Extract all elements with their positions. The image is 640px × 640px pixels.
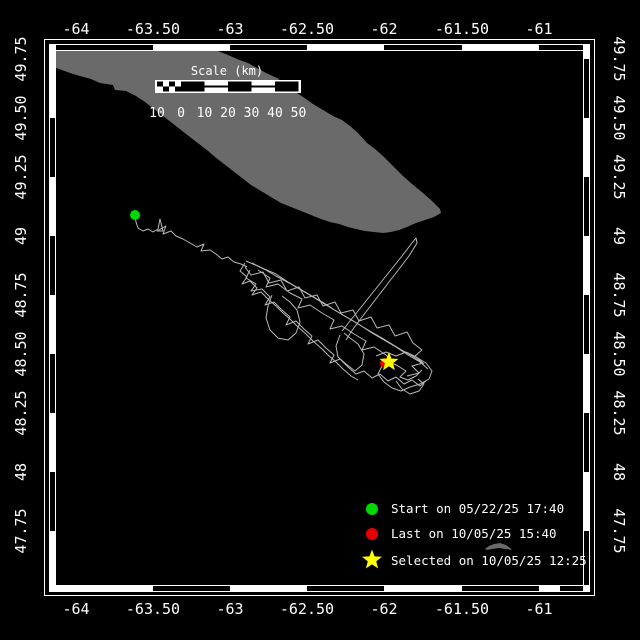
lon-tick-label: -63: [216, 600, 243, 618]
legend-last-label: Last on 10/05/25 15:40: [391, 526, 557, 541]
map-background: [0, 0, 640, 640]
lat-tick-label: 48.50: [12, 331, 30, 376]
latitude-labels-left: 49.75 49.50 49.25 49 48.75 48.50 48.25 4…: [12, 36, 30, 553]
lat-tick-label: 48.25: [12, 390, 30, 435]
scale-number: 10: [149, 106, 165, 121]
lon-tick-label: -62: [370, 20, 397, 38]
longitude-labels-bottom: -64 -63.50 -63 -62.50 -62 -61.50 -61: [62, 600, 552, 618]
lon-tick-label: -62.50: [280, 600, 334, 618]
lon-tick-label: -61: [525, 20, 552, 38]
frame-bottom-segments: [153, 586, 583, 591]
lon-tick-label: -63.50: [126, 20, 180, 38]
legend: Start on 05/22/25 17:40 Last on 10/05/25…: [362, 501, 587, 568]
lat-tick-label: 49.25: [12, 154, 30, 199]
lon-tick-label: -64: [62, 20, 89, 38]
lon-tick-label: -62.50: [280, 20, 334, 38]
lon-tick-label: -62: [370, 600, 397, 618]
latitude-labels-right: 49.75 49.50 49.25 49 48.75 48.50 48.25 4…: [610, 36, 628, 553]
scale-bar-title: Scale (km): [191, 64, 263, 78]
lat-tick-label: 49.25: [610, 154, 628, 199]
lon-tick-label: -63.50: [126, 600, 180, 618]
scale-number: 10: [197, 106, 213, 121]
lon-tick-label: -64: [62, 600, 89, 618]
lat-tick-label: 47.75: [610, 508, 628, 553]
lat-tick-label: 48: [610, 463, 628, 481]
lat-tick-label: 49.75: [12, 36, 30, 81]
lat-tick-label: 48.75: [610, 272, 628, 317]
lat-tick-label: 48.25: [610, 390, 628, 435]
legend-start-icon: [366, 503, 378, 515]
scale-number: 20: [220, 106, 236, 121]
longitude-labels-top: -64 -63.50 -63 -62.50 -62 -61.50 -61: [62, 20, 552, 38]
scale-number: 50: [291, 106, 307, 121]
scale-number: 30: [244, 106, 260, 121]
lat-tick-label: 47.75: [12, 508, 30, 553]
lat-tick-label: 48.50: [610, 331, 628, 376]
scale-number: 0: [177, 106, 185, 121]
scale-number: 40: [267, 106, 283, 121]
lon-tick-label: -61: [525, 600, 552, 618]
lat-tick-label: 49.50: [12, 95, 30, 140]
lat-tick-label: 49: [12, 227, 30, 245]
legend-start-label: Start on 05/22/25 17:40: [391, 501, 564, 516]
lon-tick-label: -63: [216, 20, 243, 38]
lat-tick-label: 48.75: [12, 272, 30, 317]
legend-last-icon: [366, 528, 378, 540]
legend-selected-label: Selected on 10/05/25 12:25: [391, 553, 587, 568]
lat-tick-label: 49: [610, 227, 628, 245]
lat-tick-label: 49.50: [610, 95, 628, 140]
start-position-marker[interactable]: [130, 210, 140, 220]
lat-tick-label: 48: [12, 463, 30, 481]
lon-tick-label: -61.50: [435, 600, 489, 618]
lon-tick-label: -61.50: [435, 20, 489, 38]
tracking-map: -64 -63.50 -63 -62.50 -62 -61.50 -61 -64…: [0, 0, 640, 640]
lat-tick-label: 49.75: [610, 36, 628, 81]
